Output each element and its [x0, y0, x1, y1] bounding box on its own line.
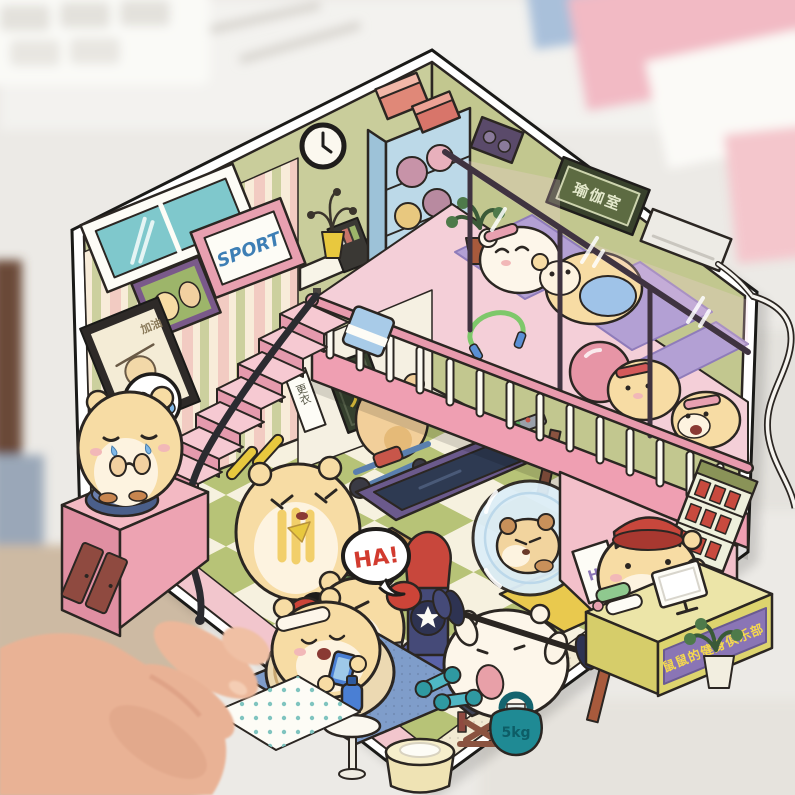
photo-stage: 加油 SPORT [0, 0, 795, 795]
crying-hamster [78, 387, 182, 506]
yoga-hamster-ball [608, 360, 680, 420]
wall-clock [302, 125, 344, 167]
kettlebell-label-text: 5kg [501, 725, 530, 741]
stair-handrail-end [195, 615, 205, 625]
towel-basket [386, 739, 454, 793]
